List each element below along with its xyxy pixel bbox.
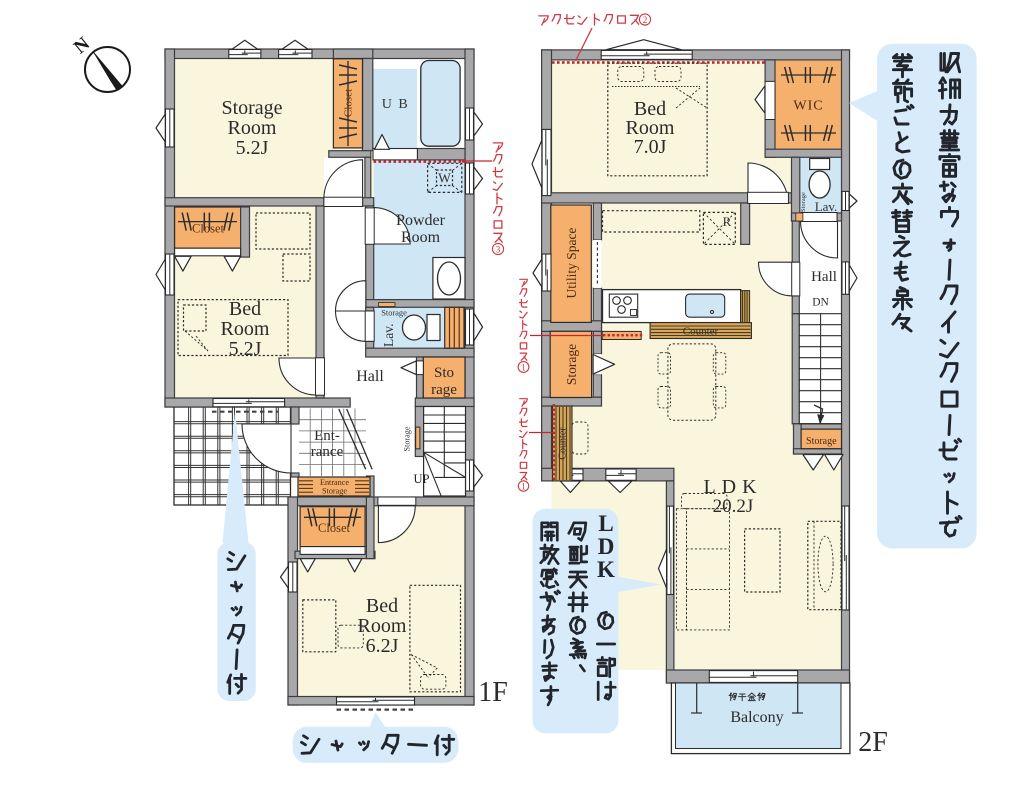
svg-text:Counter: Counter <box>558 427 569 460</box>
svg-text:L: L <box>598 511 613 536</box>
svg-text:Storage: Storage <box>322 487 347 496</box>
svg-text:U B: U B <box>382 97 409 112</box>
svg-text:20.2J: 20.2J <box>713 496 754 517</box>
svg-text:1: 1 <box>521 482 526 492</box>
svg-text:Ent-: Ent- <box>314 428 340 444</box>
svg-text:5.2J: 5.2J <box>236 137 269 159</box>
svg-text:UP: UP <box>414 472 430 486</box>
svg-text:7.0J: 7.0J <box>634 136 667 158</box>
svg-text:Closet: Closet <box>343 89 355 117</box>
svg-text:Storage: Storage <box>381 309 407 318</box>
svg-text:rage: rage <box>431 382 457 398</box>
svg-text:Storage: Storage <box>806 436 837 447</box>
svg-text:6.2J: 6.2J <box>366 635 399 657</box>
svg-text:R: R <box>723 214 732 229</box>
svg-text:D: D <box>598 534 615 559</box>
svg-text:1: 1 <box>521 362 526 372</box>
svg-text:Sto: Sto <box>434 365 454 381</box>
svg-text:Room: Room <box>228 117 277 139</box>
svg-text:Lav.: Lav. <box>381 324 396 348</box>
svg-text:3: 3 <box>496 246 501 256</box>
svg-text:K: K <box>597 557 615 582</box>
svg-text:Utility Space: Utility Space <box>564 228 579 299</box>
svg-text:Hall: Hall <box>356 368 384 385</box>
svg-text:Hall: Hall <box>811 269 837 285</box>
svg-text:rance: rance <box>311 444 344 460</box>
svg-text:W: W <box>438 171 451 186</box>
svg-text:Closet: Closet <box>318 521 350 535</box>
svg-text:Lav.: Lav. <box>815 199 838 214</box>
svg-text:Powder: Powder <box>396 212 446 229</box>
svg-text:2: 2 <box>643 16 648 26</box>
svg-text:1F: 1F <box>478 677 508 708</box>
svg-text:Counter: Counter <box>683 326 719 338</box>
svg-text:Storage: Storage <box>221 97 282 119</box>
svg-text:LDK: LDK <box>703 476 762 498</box>
svg-text:Storage: Storage <box>564 344 579 385</box>
svg-text:Storage: Storage <box>800 192 807 212</box>
svg-text:2F: 2F <box>858 727 888 758</box>
svg-text:Bed: Bed <box>366 595 398 617</box>
svg-text:Room: Room <box>358 615 407 637</box>
svg-text:DN: DN <box>812 297 829 309</box>
svg-text:Closet: Closet <box>192 222 224 236</box>
svg-text:Room: Room <box>221 318 270 340</box>
svg-text:Balcony: Balcony <box>730 709 783 726</box>
svg-text:WIC: WIC <box>793 99 823 114</box>
svg-text:Bed: Bed <box>229 298 261 320</box>
svg-text:Storage: Storage <box>403 426 412 451</box>
svg-text:5.2J: 5.2J <box>229 338 262 360</box>
svg-text:Room: Room <box>401 229 441 246</box>
